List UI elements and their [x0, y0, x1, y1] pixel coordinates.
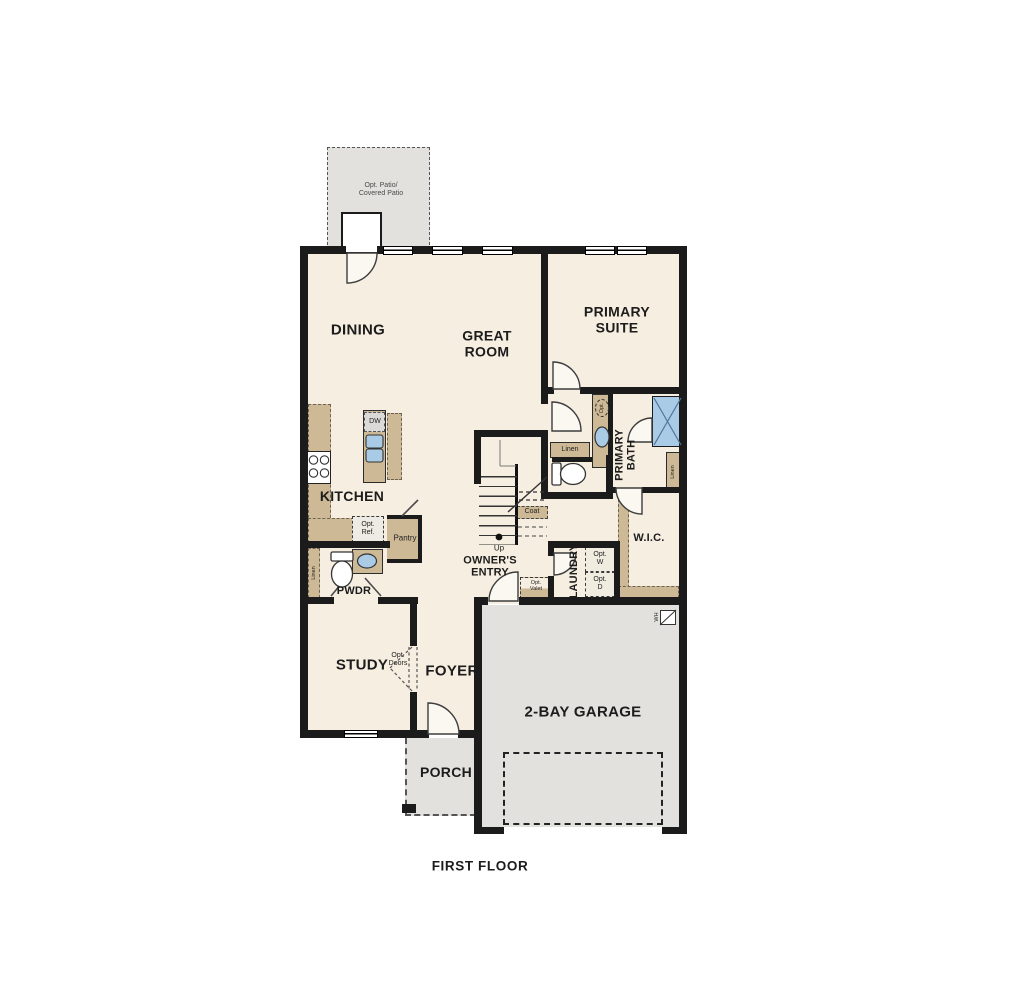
- wic-label: W.I.C.: [633, 532, 664, 544]
- linen-right-label: Linen: [670, 465, 676, 478]
- patio-vestibule: [341, 212, 382, 254]
- wall: [474, 827, 504, 834]
- porch-label: PORCH: [420, 765, 472, 781]
- wall: [612, 487, 616, 493]
- wall: [642, 487, 687, 493]
- wall: [474, 597, 488, 605]
- coat-label: Coat: [525, 508, 540, 516]
- garage-door-outline: [503, 752, 663, 825]
- wall: [679, 246, 687, 834]
- pantry-label: Pantry: [393, 535, 416, 544]
- window: [383, 246, 413, 255]
- kitchen-island-opt: [387, 413, 402, 480]
- wall: [541, 431, 548, 492]
- opt-doors-label: Opt. Doors: [389, 652, 408, 668]
- wall: [548, 548, 554, 556]
- wall: [541, 392, 548, 404]
- wall: [541, 252, 548, 392]
- opt-sink-label: Opt.: [599, 403, 605, 413]
- wall: [580, 387, 687, 394]
- wall: [300, 541, 390, 548]
- pwdr-label: PWDR: [337, 585, 371, 597]
- pwdr-vanity: [352, 549, 383, 574]
- wall: [548, 576, 554, 603]
- wall: [519, 597, 687, 605]
- wall: [614, 541, 620, 601]
- primary-bath-label: PRIMARY BATH: [614, 429, 639, 481]
- opt-valet-label: Opt. Valet: [530, 580, 542, 592]
- wall: [300, 246, 308, 738]
- floor-plan: Opt. Patio/ Covered Patio DINING GREAT R…: [0, 0, 1010, 1000]
- wall: [541, 492, 613, 499]
- plan-title: FIRST FLOOR: [432, 858, 529, 873]
- wall: [474, 430, 548, 437]
- window: [585, 246, 615, 255]
- wall: [608, 393, 613, 463]
- wall: [300, 597, 334, 604]
- opt-ref-label: Opt. Ref.: [361, 521, 374, 537]
- water-heater-icon: [660, 610, 676, 625]
- wall: [662, 827, 687, 834]
- wall: [474, 597, 482, 834]
- window: [617, 246, 647, 255]
- primary-suite-label: PRIMARY SUITE: [584, 304, 650, 335]
- opt-dryer-label: Opt. D: [593, 576, 606, 592]
- opt-washer-label: Opt. W: [593, 551, 606, 567]
- window: [432, 246, 463, 255]
- linen-bath-label: Linen: [561, 446, 578, 454]
- range-icon: [306, 451, 331, 484]
- foyer-label: FOYER: [425, 664, 478, 681]
- wall: [474, 430, 481, 484]
- wall: [548, 541, 620, 548]
- dishwasher-label: DW: [369, 418, 381, 426]
- laundry-label: LAUNDRY: [568, 544, 580, 599]
- patio-label: Opt. Patio/ Covered Patio: [359, 182, 403, 198]
- stair-treads: [479, 476, 517, 545]
- water-heater-label: WH: [654, 612, 660, 621]
- kitchen-label: KITCHEN: [320, 489, 384, 505]
- wall: [410, 597, 417, 646]
- kitchen-counter-bottom: [308, 518, 354, 543]
- garage-label: 2-BAY GARAGE: [525, 705, 642, 722]
- dining-label: DINING: [331, 323, 385, 340]
- up-label: Up: [494, 545, 504, 554]
- wall: [458, 730, 475, 738]
- owners-entry-label: OWNER'S ENTRY: [463, 555, 517, 580]
- study-label: STUDY: [336, 658, 388, 675]
- porch-corner-post: [402, 804, 416, 813]
- window: [344, 730, 378, 738]
- wall: [552, 457, 592, 462]
- great-room-label: GREAT ROOM: [462, 328, 511, 359]
- linen-left-label: Linen: [311, 566, 317, 579]
- window: [482, 246, 513, 255]
